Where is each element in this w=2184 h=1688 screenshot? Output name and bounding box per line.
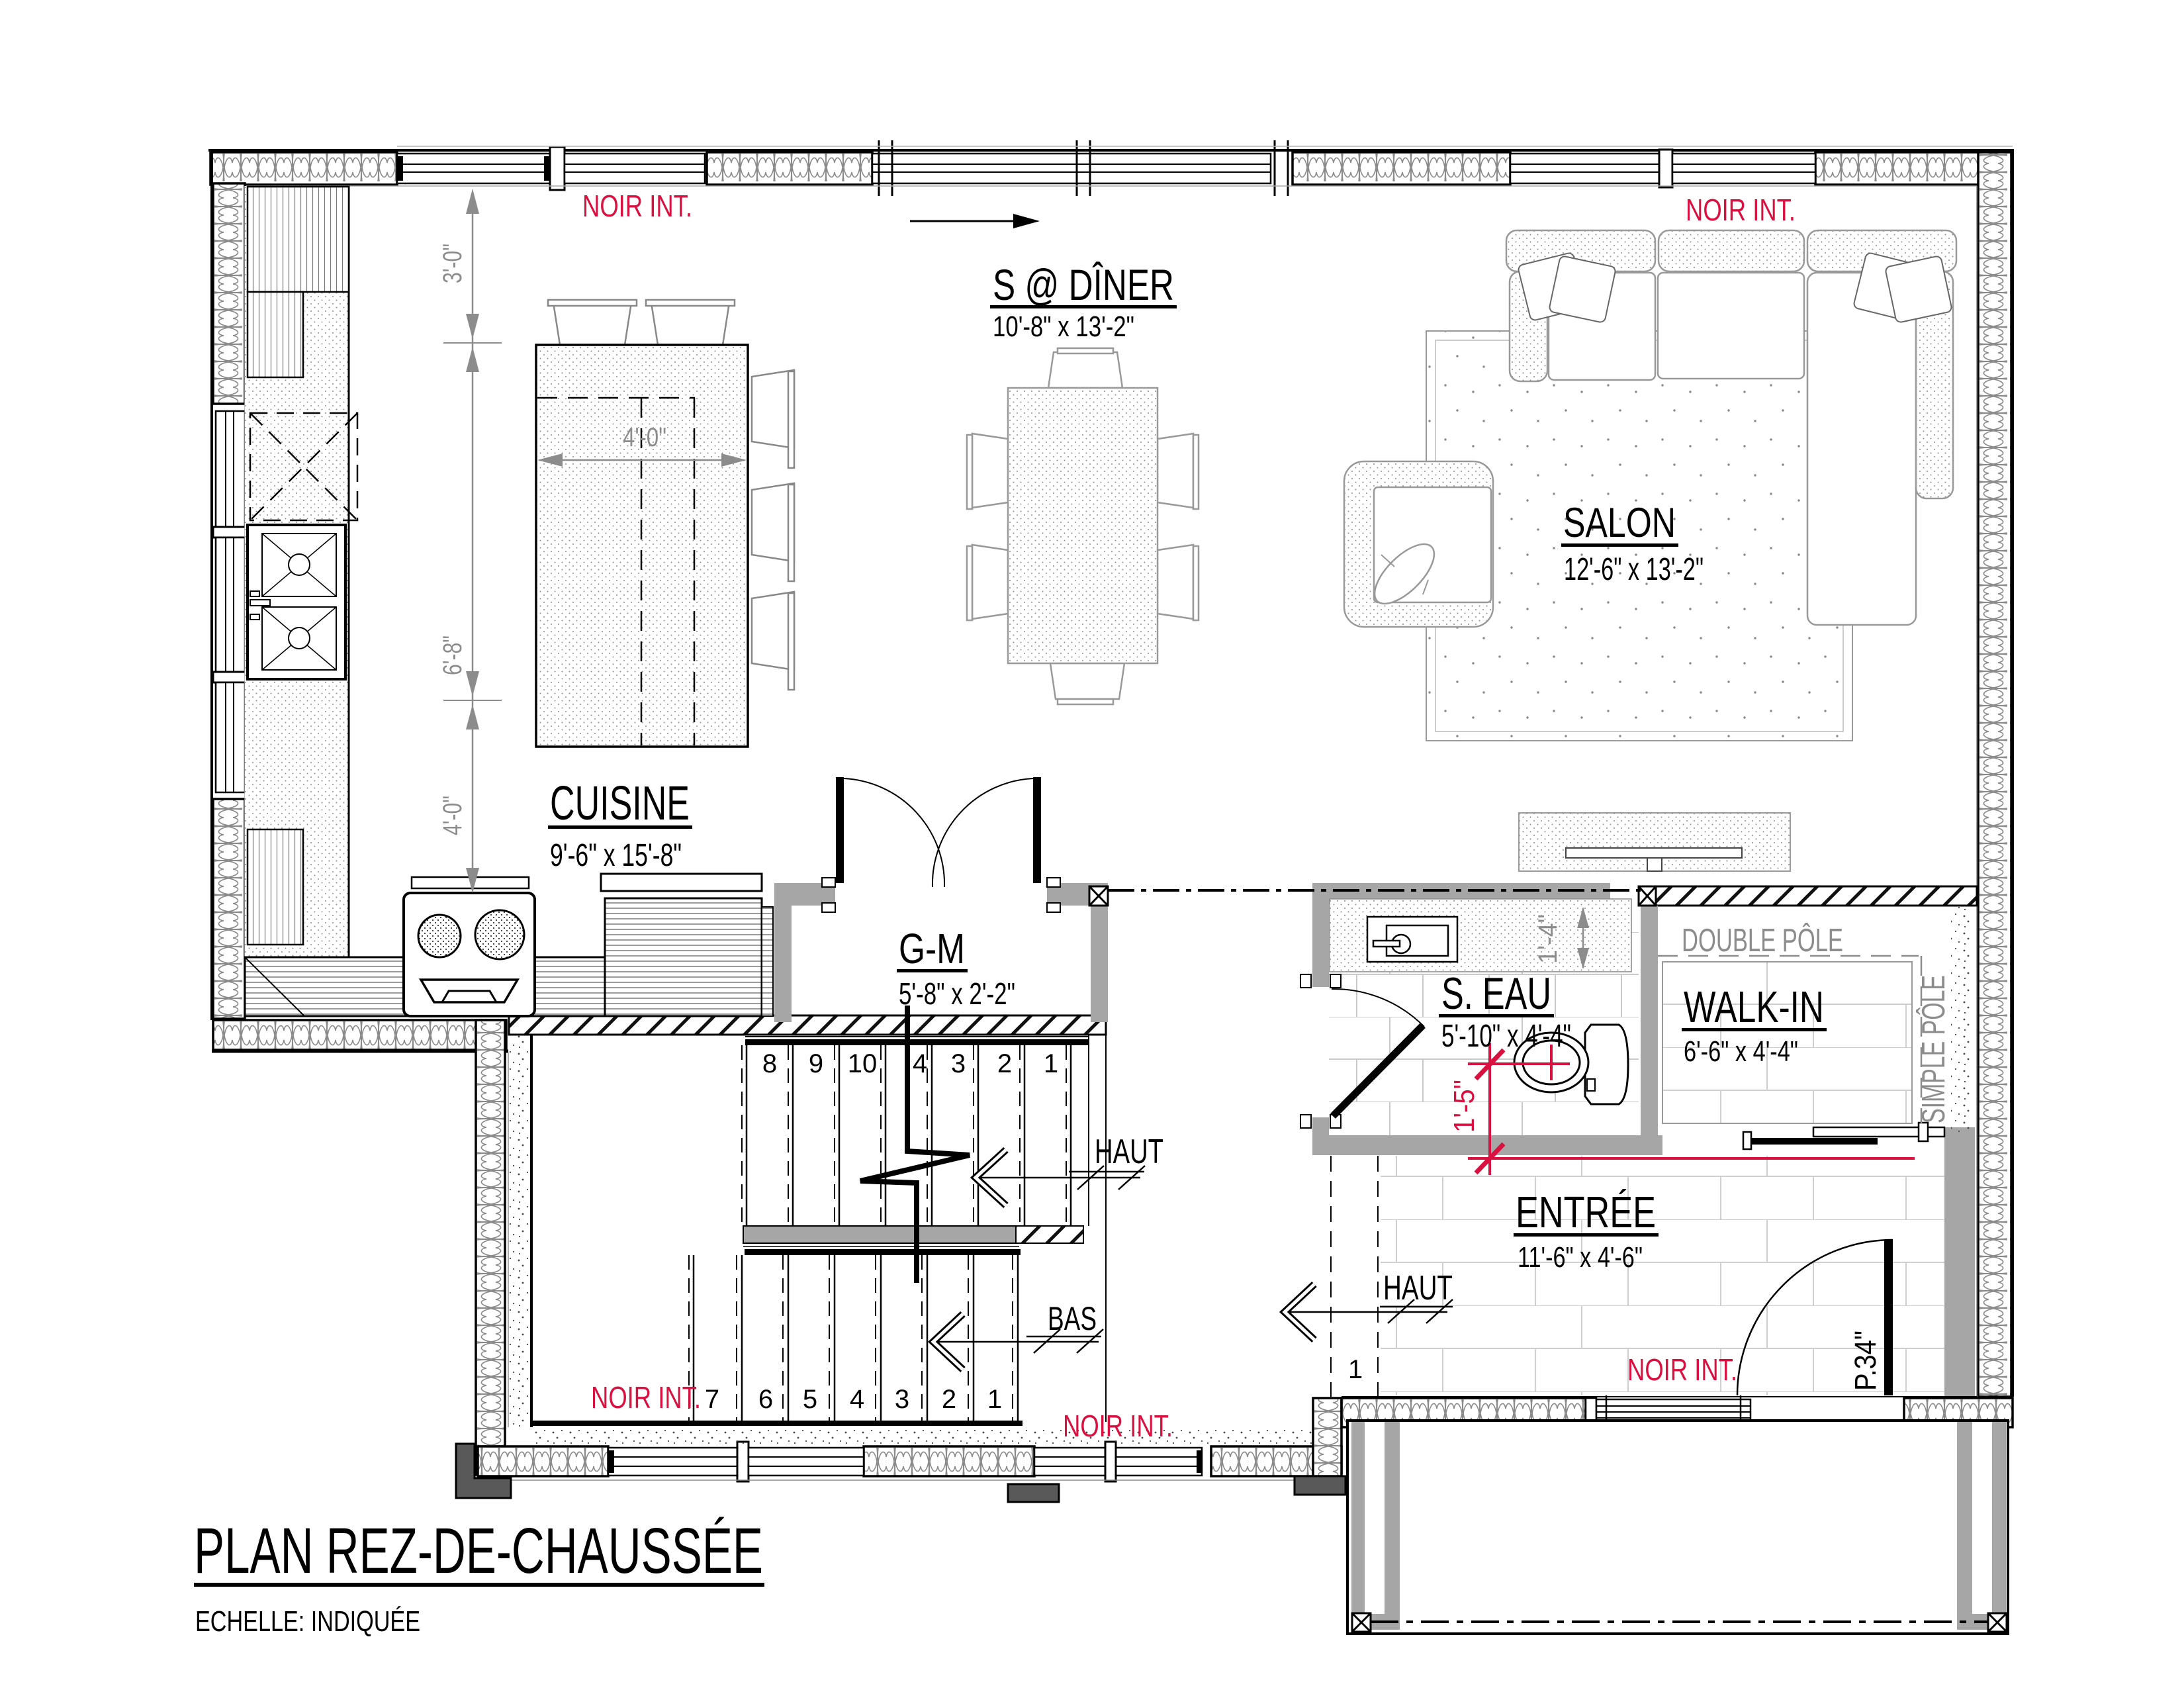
svg-text:10'-8" x 13'-2": 10'-8" x 13'-2" [993,310,1134,343]
svg-text:1: 1 [1044,1049,1058,1078]
svg-text:1: 1 [987,1385,1002,1414]
svg-text:S. EAU: S. EAU [1441,968,1551,1019]
svg-text:WALK-IN: WALK-IN [1684,982,1824,1032]
svg-text:1'-5": 1'-5" [1448,1080,1480,1133]
svg-text:9'-6" x 15'-8": 9'-6" x 15'-8" [550,838,682,873]
svg-text:S @ DÎNER: S @ DÎNER [993,260,1174,309]
svg-text:3'-0": 3'-0" [438,244,467,283]
svg-text:4'-0": 4'-0" [623,423,666,452]
svg-text:6: 6 [758,1385,773,1414]
svg-text:4: 4 [850,1385,864,1414]
svg-text:8: 8 [762,1049,777,1078]
svg-text:CUISINE: CUISINE [550,777,690,830]
svg-text:3: 3 [951,1049,966,1078]
svg-text:NOIR INT.: NOIR INT. [1686,193,1796,227]
svg-text:11'-6" x 4'-6": 11'-6" x 4'-6" [1518,1241,1643,1274]
svg-text:4: 4 [913,1049,927,1078]
svg-text:ECHELLE: INDIQUÉE: ECHELLE: INDIQUÉE [195,1605,420,1638]
svg-text:7: 7 [705,1385,719,1414]
svg-text:1: 1 [1348,1355,1363,1384]
svg-text:SALON: SALON [1563,500,1676,546]
svg-text:6'-8": 6'-8" [438,635,467,675]
svg-text:PLAN REZ-DE-CHAUSSÉE: PLAN REZ-DE-CHAUSSÉE [194,1515,763,1587]
svg-text:BAS: BAS [1048,1300,1097,1337]
svg-text:DOUBLE PÔLE: DOUBLE PÔLE [1682,923,1843,959]
svg-text:5'-10" x 4'-4": 5'-10" x 4'-4" [1441,1019,1571,1054]
svg-text:3: 3 [895,1385,909,1414]
svg-text:P.34": P.34" [1848,1331,1882,1391]
svg-text:10: 10 [848,1049,878,1078]
svg-text:G-M: G-M [899,925,965,972]
svg-text:12'-6" x 13'-2": 12'-6" x 13'-2" [1564,552,1704,587]
svg-text:SIMPLE PÔLE: SIMPLE PÔLE [1916,975,1952,1123]
svg-text:5: 5 [803,1385,817,1414]
svg-text:NOIR INT.: NOIR INT. [1063,1409,1173,1443]
svg-text:ENTRÉE: ENTRÉE [1516,1188,1656,1237]
svg-text:NOIR INT.: NOIR INT. [1627,1352,1737,1387]
svg-text:2: 2 [997,1049,1012,1078]
svg-text:NOIR INT.: NOIR INT. [582,189,692,223]
svg-text:4'-0": 4'-0" [438,796,467,835]
svg-text:HAUT: HAUT [1383,1269,1453,1307]
svg-text:5'-8" x 2'-2": 5'-8" x 2'-2" [899,976,1015,1011]
svg-text:9: 9 [809,1049,823,1078]
svg-text:NOIR INT.: NOIR INT. [591,1380,701,1415]
svg-text:HAUT: HAUT [1095,1133,1163,1171]
svg-text:2: 2 [942,1385,956,1414]
svg-text:6'-6" x 4'-4": 6'-6" x 4'-4" [1684,1035,1798,1068]
svg-text:1'-4": 1'-4" [1533,914,1563,964]
